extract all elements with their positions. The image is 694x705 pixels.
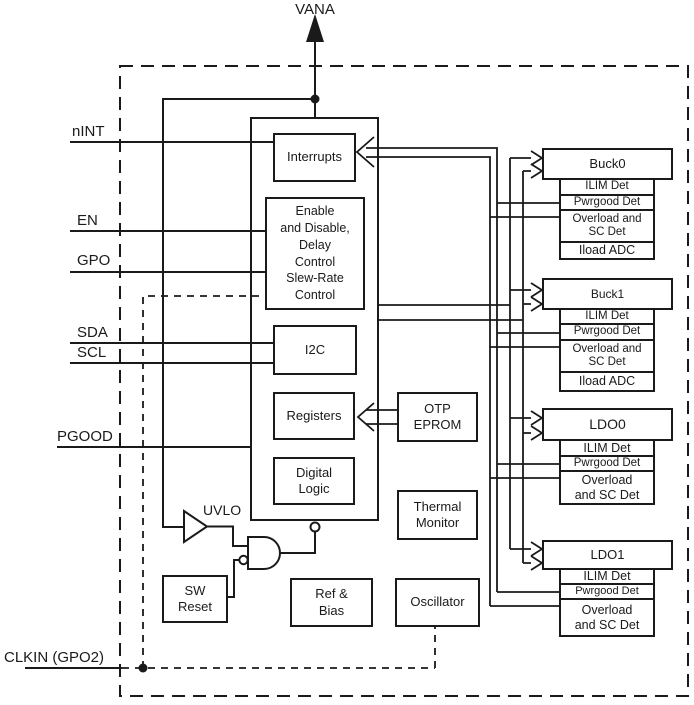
- control-bus2-taps: [523, 171, 531, 563]
- sda-pin-label: SDA: [77, 324, 108, 341]
- buck1-arrow-upper-icon: [531, 283, 542, 297]
- block-diagram: VANA nINT EN GPO SDA SCL PGOOD CLKIN (GP…: [0, 0, 694, 705]
- block-enable-control: Enable and Disable, Delay Control Slew-R…: [265, 197, 365, 310]
- clkin-junction-dot: [139, 664, 148, 673]
- pwrgood-status-taps: [497, 203, 559, 592]
- buck1-row-iload-adc: Iload ADC: [559, 371, 655, 392]
- block-buck0: Buck0: [542, 148, 673, 180]
- block-buck1: Buck1: [542, 278, 673, 310]
- vana-arrow-icon: [306, 14, 324, 42]
- nand-gate-icon: [248, 537, 280, 569]
- block-oscillator: Oscillator: [395, 578, 480, 627]
- buck0-arrow-upper-icon: [531, 151, 542, 165]
- gate-output-node: [311, 523, 320, 532]
- swreset-to-gate-wire: [228, 560, 239, 597]
- block-thermal-monitor: Thermal Monitor: [397, 490, 478, 540]
- scl-pin-label: SCL: [77, 344, 106, 361]
- ldo0-row-overload: Overload and SC Det: [559, 470, 655, 505]
- block-sw-reset: SW Reset: [162, 575, 228, 623]
- buck0-arrow-lower-icon: [531, 164, 542, 178]
- nint-pin-label: nINT: [72, 123, 105, 140]
- block-digital-logic: Digital Logic: [273, 457, 355, 505]
- ldo1-arrow-upper-icon: [531, 542, 542, 556]
- gpo-pin-label: GPO: [77, 252, 110, 269]
- block-i2c: I2C: [273, 325, 357, 375]
- gate-output-wire: [280, 532, 315, 554]
- block-ref-bias: Ref & Bias: [290, 578, 373, 627]
- ldo0-arrow-upper-icon: [531, 411, 542, 425]
- uvlo-label: UVLO: [203, 502, 241, 518]
- block-ldo0: LDO0: [542, 408, 673, 441]
- buck0-row-overload: Overload and SC Det: [559, 209, 655, 243]
- nand-input-bubble: [239, 556, 247, 564]
- block-interrupts: Interrupts: [273, 133, 356, 182]
- vana-pin-label: VANA: [290, 1, 340, 18]
- vana-junction-dot: [311, 95, 320, 104]
- buck1-arrow-lower-icon: [531, 297, 542, 311]
- ldo1-arrow-lower-icon: [531, 556, 542, 570]
- block-registers: Registers: [273, 392, 355, 440]
- uvlo-to-gate-wire: [207, 527, 248, 547]
- block-otp-eprom: OTP EPROM: [397, 392, 478, 442]
- buck0-row-iload-adc: Iload ADC: [559, 241, 655, 260]
- clkin-pin-label: CLKIN (GPO2): [4, 649, 104, 666]
- block-ldo1: LDO1: [542, 540, 673, 570]
- pgood-pin-label: PGOOD: [57, 428, 113, 445]
- en-pin-label: EN: [77, 212, 98, 229]
- ldo0-arrow-lower-icon: [531, 426, 542, 440]
- buck1-row-overload: Overload and SC Det: [559, 339, 655, 373]
- ldo1-row-overload: Overload and SC Det: [559, 598, 655, 637]
